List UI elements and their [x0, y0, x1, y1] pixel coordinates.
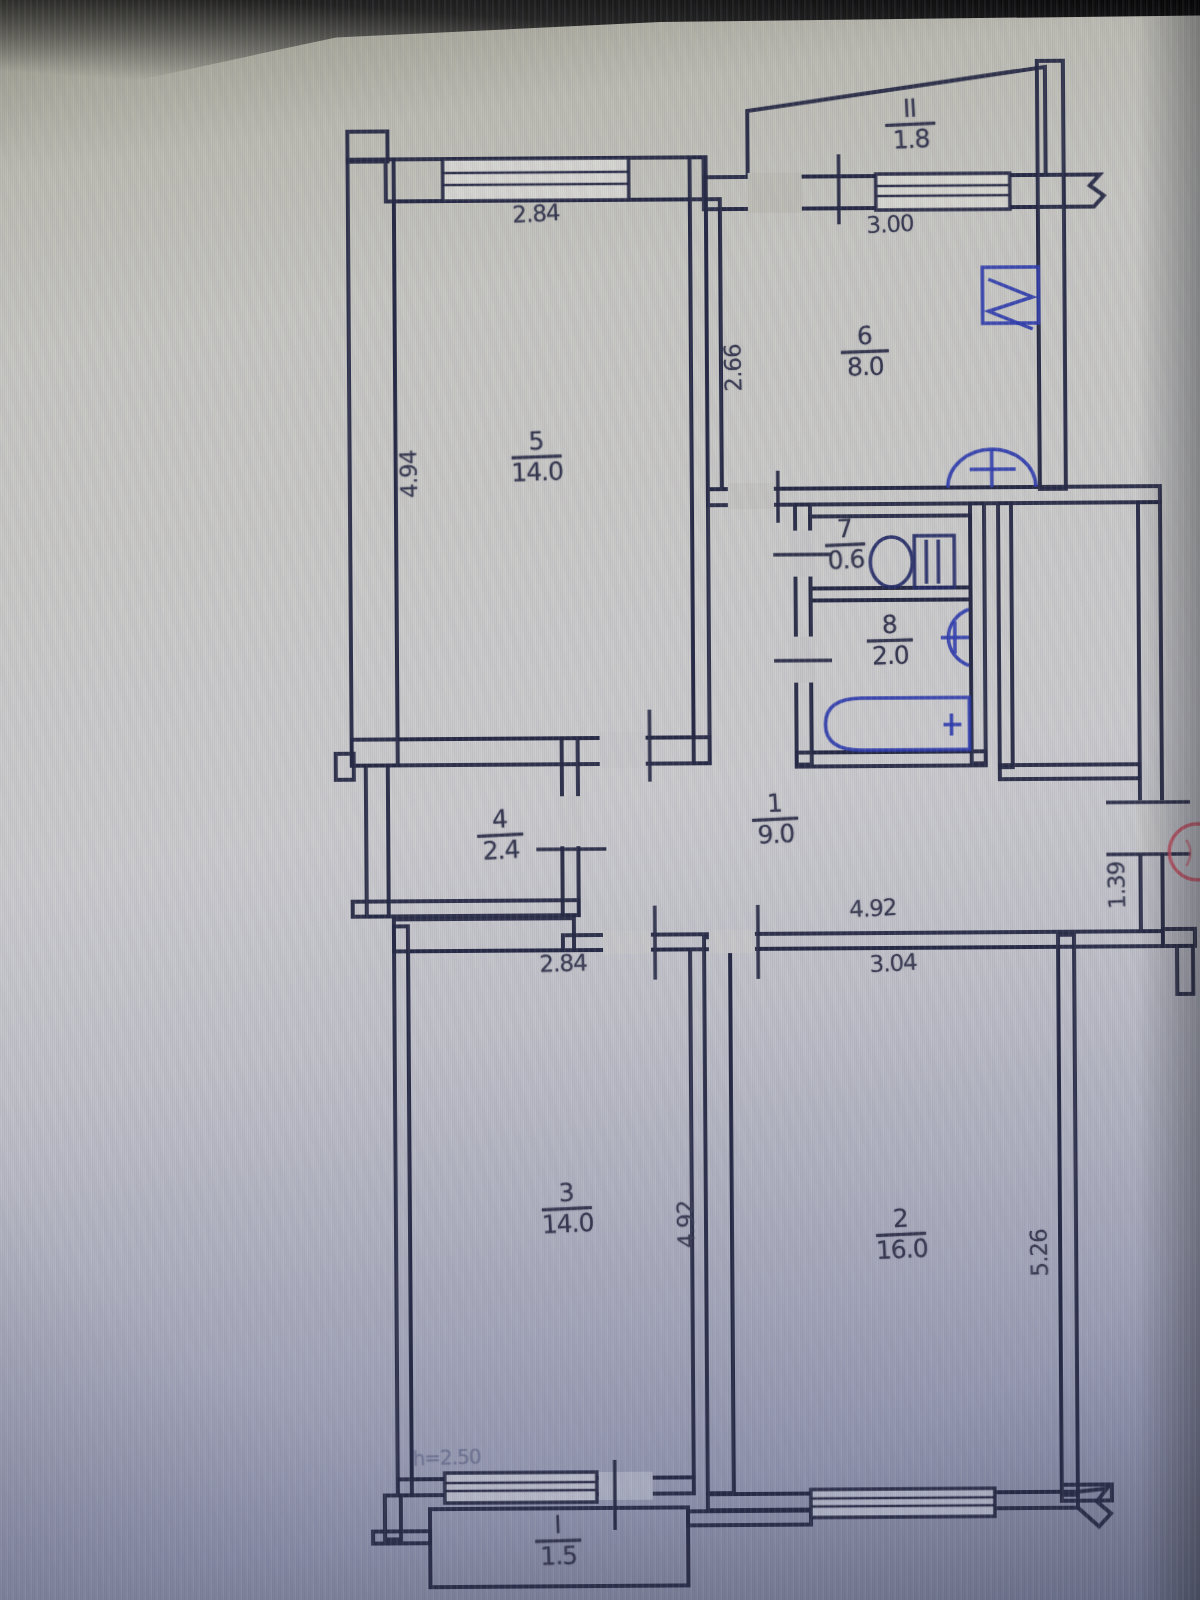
wall-jut-right: [1163, 929, 1195, 946]
room-4-label: 4 2.4: [474, 805, 527, 864]
room-3-label: 3 14.0: [537, 1179, 596, 1239]
kitchen-sink-icon: [948, 449, 1036, 488]
door-tick: [758, 905, 759, 979]
room-8-label: 8 2.0: [864, 611, 916, 670]
dim-room5-width: 2.84: [503, 199, 568, 228]
floor-plan-svg: [0, 0, 1200, 1600]
dim-room6-width: 3.00: [857, 209, 922, 238]
wall: [347, 131, 387, 161]
balcony-I-label: I 1.5: [531, 1511, 585, 1570]
ceiling-height-note: h=2.50: [412, 1444, 503, 1471]
door-gap: [599, 1472, 653, 1500]
dim-room2-depth: 5.26: [1025, 1221, 1053, 1286]
wall-jut-stub: [1177, 946, 1193, 994]
wall-right-exterior-mid: [1138, 502, 1163, 931]
bathtub-icon: [825, 697, 969, 750]
dim-room5-depth: 4.94: [395, 442, 423, 507]
door-gap: [1136, 800, 1166, 854]
wall-step-balcony: [688, 1511, 811, 1526]
door-gap: [603, 931, 651, 954]
room-1-label: 1 9.0: [749, 790, 802, 849]
dim-room6-depth: 2.66: [719, 336, 747, 401]
door-tick: [649, 710, 650, 782]
door-tick: [1106, 802, 1190, 803]
dim-hall-width: 4.92: [840, 893, 905, 922]
door-tick: [655, 906, 656, 980]
door-gap: [709, 930, 755, 953]
floor-plan-drawing: II 1.8 6 8.0 5 14.0 7 0.6 8 2.0 4 2.4: [0, 0, 1200, 1600]
dim-room3-depth: 4.92: [672, 1192, 700, 1257]
balcony-II-label: II 1.8: [882, 94, 939, 154]
wall-room4-left: [366, 765, 389, 916]
wall-shaft-left: [998, 503, 1013, 767]
room-6-label: 6 8.0: [837, 322, 893, 381]
door-gap: [728, 483, 774, 509]
window-kitchen: [876, 173, 1010, 210]
dim-room2-width: 3.04: [861, 948, 926, 977]
wall-left-exterior: [348, 159, 398, 765]
room-7-label: 7 0.6: [821, 515, 870, 574]
wall-room4-bottom: [353, 900, 579, 917]
dim-entry-width: 1.39: [1103, 853, 1131, 918]
washbasin-icon: [941, 609, 969, 665]
room-5-label: 5 14.0: [507, 427, 567, 486]
wall-room3-top: [394, 918, 574, 951]
floor-plan-photo: II 1.8 6 8.0 5 14.0 7 0.6 8 2.0 4 2.4: [0, 0, 1200, 1600]
wall-break-icon-top: [1064, 174, 1104, 206]
toilet-icon: [870, 536, 954, 589]
window-room2: [811, 1488, 995, 1517]
wall-shaft-bottom: [1000, 764, 1140, 779]
window-room3: [445, 1472, 597, 1503]
wall-room5-bottom: [352, 737, 710, 765]
stove-icon: [982, 267, 1038, 329]
door-gap: [748, 173, 802, 213]
door-gap: [600, 732, 646, 768]
room-2-label: 2 16.0: [872, 1205, 931, 1265]
dim-room3-width: 2.84: [531, 949, 596, 977]
stamp-circle-icon: [1169, 824, 1200, 880]
window-room5: [443, 158, 629, 201]
wall-break-icon-bottom: [1078, 1488, 1111, 1526]
door-gap: [558, 796, 582, 846]
